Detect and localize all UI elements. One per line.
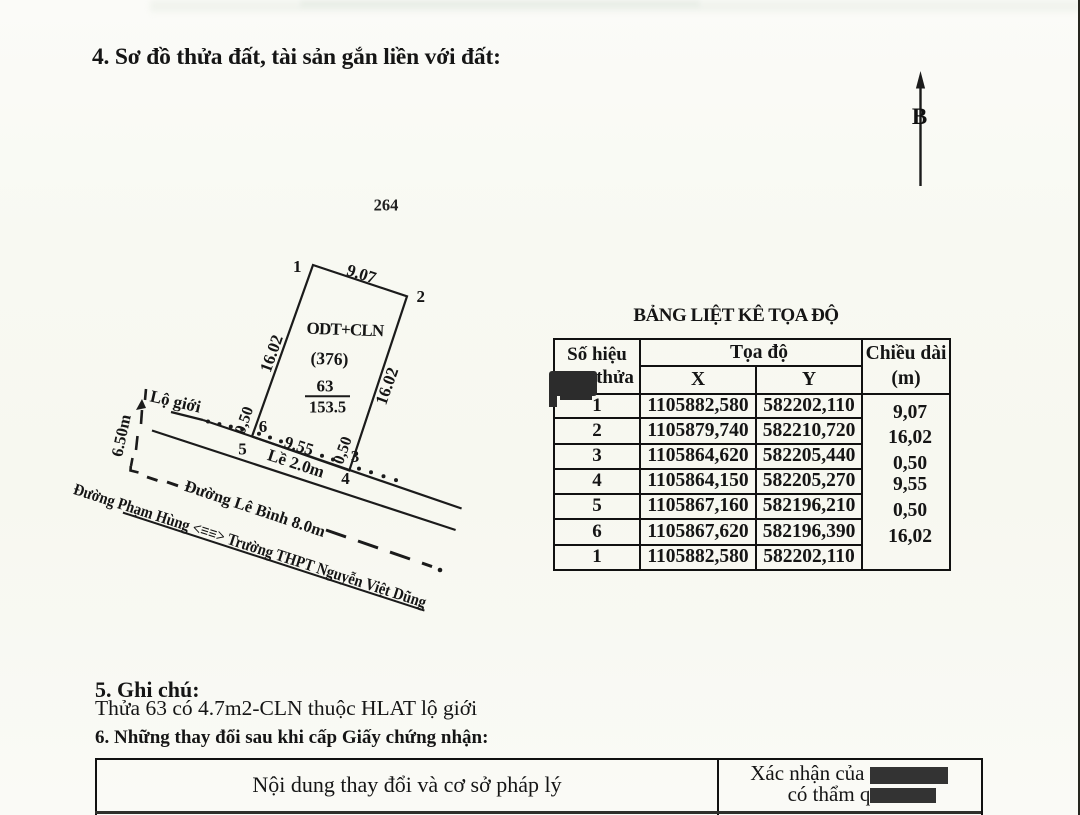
svg-text:2: 2 <box>416 287 425 306</box>
svg-text:153.5: 153.5 <box>309 398 346 417</box>
svg-text:5: 5 <box>238 440 247 459</box>
svg-text:63: 63 <box>317 377 334 396</box>
svg-text:6: 6 <box>259 417 268 436</box>
svg-text:(376): (376) <box>310 348 349 369</box>
svg-text:264: 264 <box>374 196 399 215</box>
svg-text:1: 1 <box>293 257 302 276</box>
svg-text:B: B <box>912 104 927 129</box>
svg-text:ODT+CLN: ODT+CLN <box>306 319 385 341</box>
svg-text:9.07: 9.07 <box>344 260 379 287</box>
svg-text:16.02: 16.02 <box>372 365 403 407</box>
svg-text:4: 4 <box>341 469 350 488</box>
svg-text:6.50m: 6.50m <box>107 412 134 458</box>
